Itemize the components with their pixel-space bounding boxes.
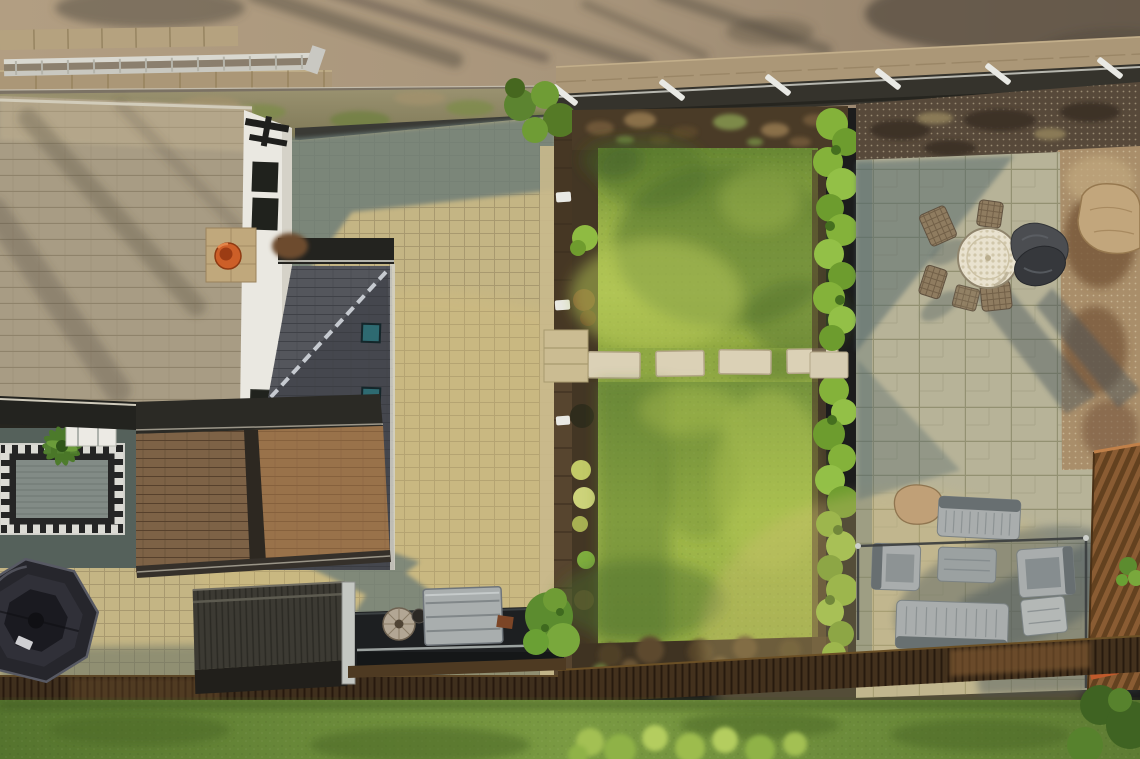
porch (0, 396, 136, 568)
garden-rock (1078, 184, 1140, 254)
aerial-photo (0, 0, 1140, 759)
stepping-stone (719, 350, 771, 374)
shed (193, 582, 348, 694)
aerial-photo-stage (0, 0, 1140, 759)
storage-box (423, 587, 503, 646)
rockery-ornament (894, 485, 942, 524)
millstone (383, 608, 415, 640)
wicker-chair (976, 199, 1003, 228)
stepping-stone (588, 352, 640, 378)
rattan-chair (1016, 546, 1075, 598)
rooflight (362, 324, 381, 343)
road-curb-stones (0, 26, 238, 50)
upper-lawn (570, 136, 850, 356)
mosaic-table (958, 228, 1018, 288)
stepping-stone (810, 352, 848, 378)
chimney (206, 228, 256, 282)
path-landing (544, 330, 588, 382)
rattan-cushion (1020, 596, 1068, 636)
stepping-stone (656, 351, 704, 377)
rattan-sofa (937, 496, 1021, 540)
wing-roof (132, 394, 391, 578)
rattan-ottoman (937, 547, 996, 583)
rattan-chair (871, 543, 921, 591)
crate (496, 615, 514, 629)
